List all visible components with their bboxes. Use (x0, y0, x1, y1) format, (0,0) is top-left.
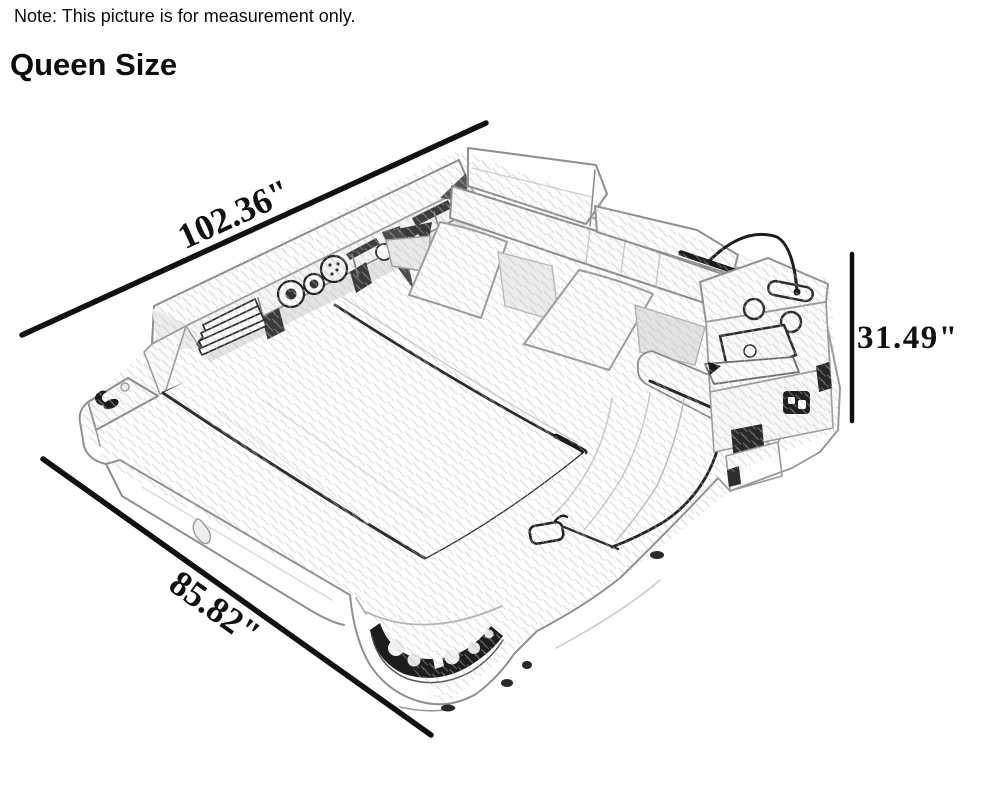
svg-text:31.49": 31.49" (857, 320, 959, 356)
